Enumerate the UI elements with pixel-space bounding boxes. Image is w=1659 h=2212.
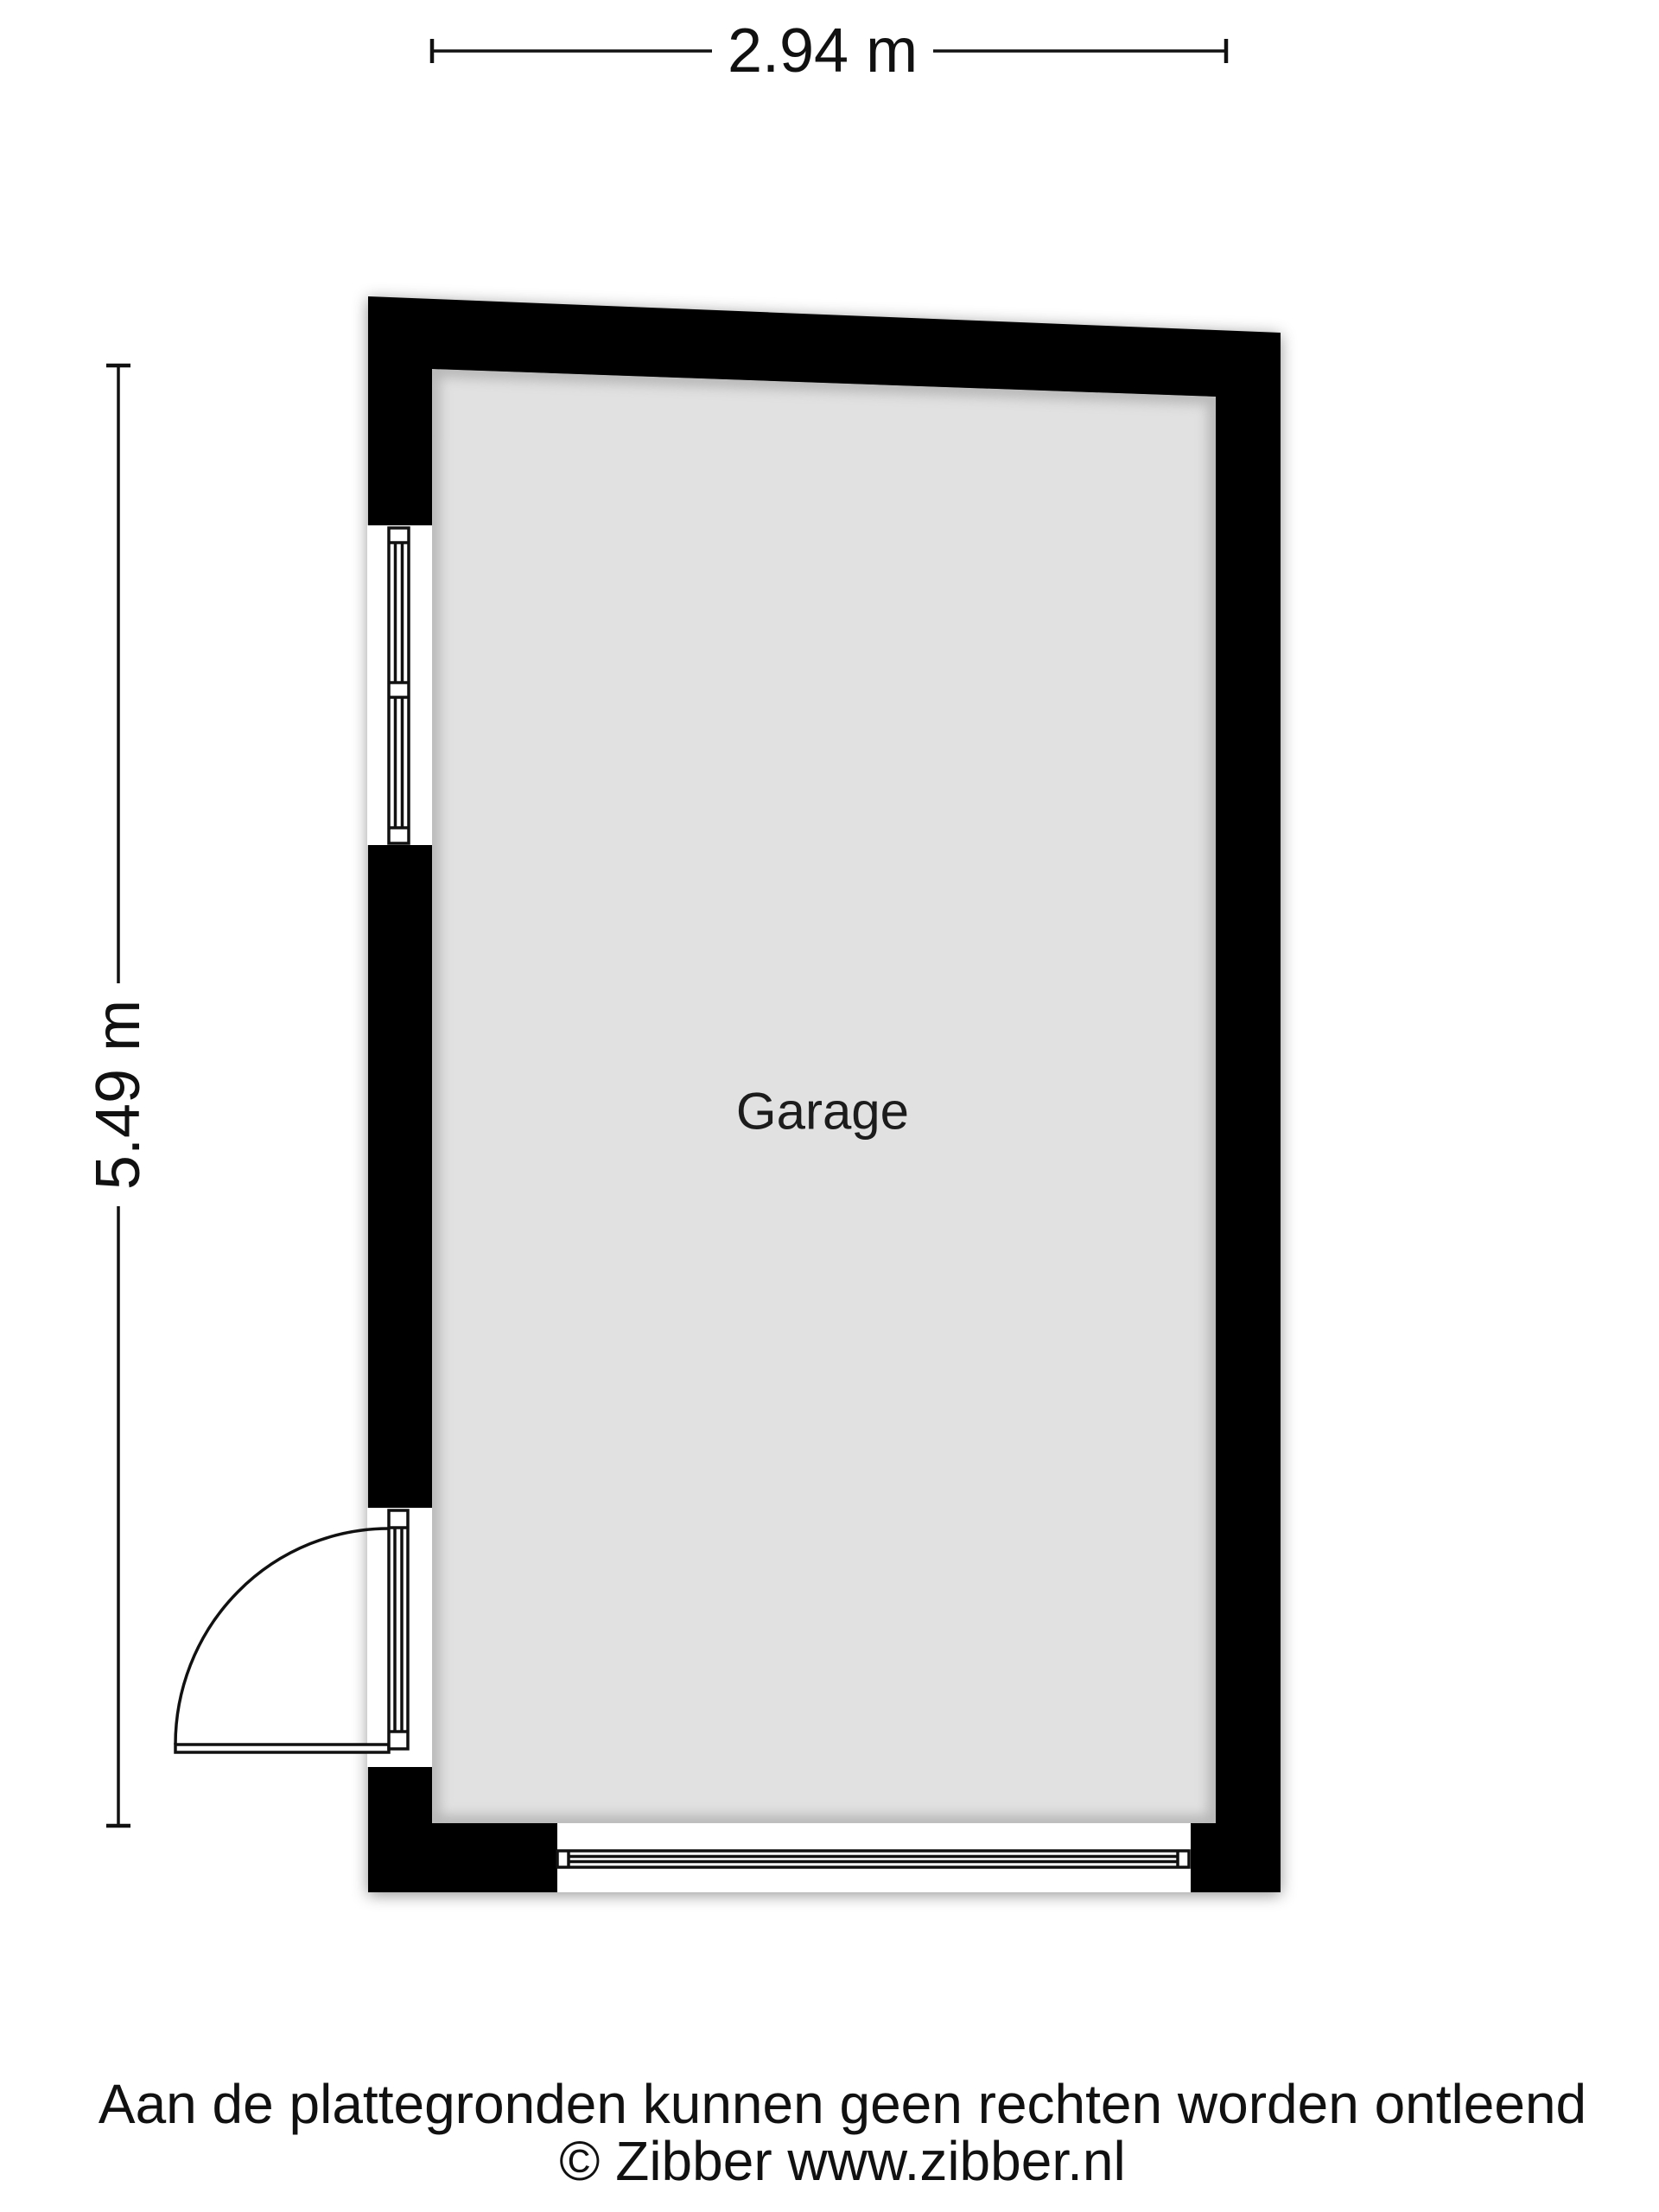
window-icon: [389, 528, 409, 843]
footer-disclaimer: Aan de plattegronden kunnen geen rechten…: [99, 2073, 1586, 2135]
room-label: Garage: [736, 1083, 909, 1141]
door-leaf: [175, 1745, 389, 1752]
garage-door-icon: [557, 1851, 1189, 1867]
left-dimension-label: 5.49 m: [84, 1000, 153, 1190]
top-dimension-label: 2.94 m: [728, 16, 918, 86]
floorplan-canvas: 2.94 m 5.49 m: [0, 0, 1659, 2212]
footer-copyright: © Zibber www.zibber.nl: [559, 2130, 1125, 2192]
door-swing-arc: [175, 1529, 389, 1745]
garage-door-frame: [557, 1851, 1189, 1867]
window-frame: [389, 528, 409, 843]
door-frame: [389, 1510, 408, 1749]
